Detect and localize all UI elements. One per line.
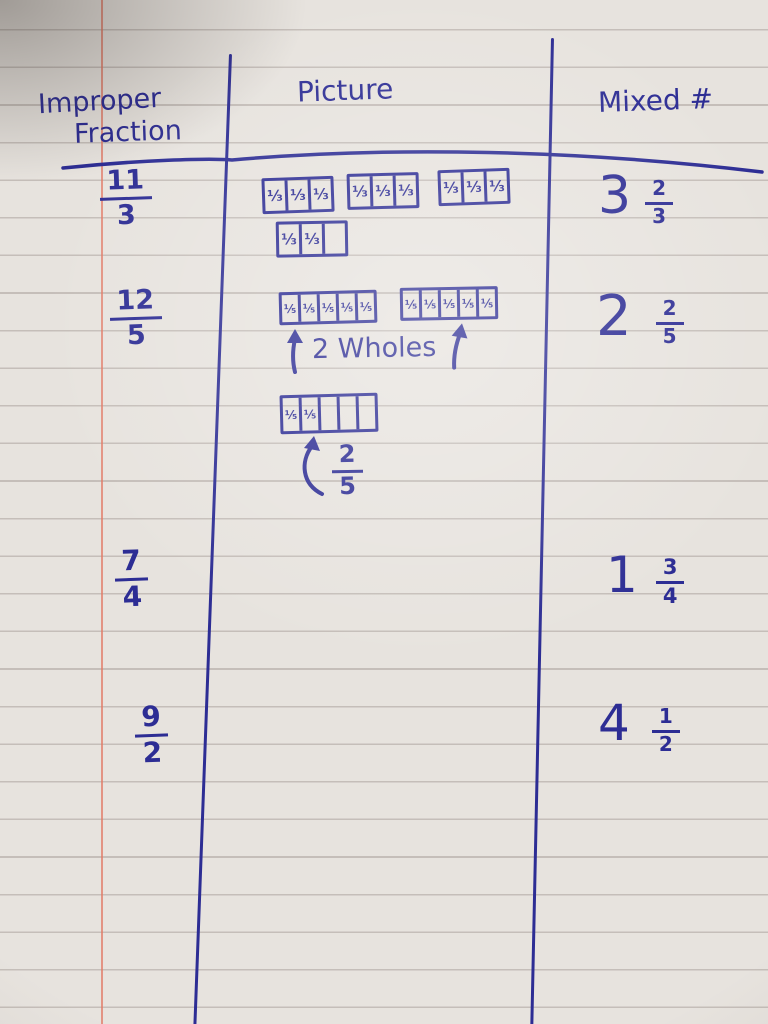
- filled-cell: ⅕: [403, 291, 419, 318]
- mixed-whole: 1: [606, 552, 638, 600]
- header-picture: Picture: [296, 72, 393, 108]
- header-improper-line1: Improper: [37, 83, 162, 120]
- arrow-up-icon: [283, 328, 307, 374]
- filled-cell: ⅕: [457, 290, 476, 317]
- arrow-up-icon: [442, 320, 474, 371]
- fraction-denominator: 4: [663, 584, 678, 608]
- empty-cell: [322, 223, 346, 253]
- mixed-number: 1 3 4: [606, 552, 684, 607]
- fraction-denominator: 3: [652, 205, 666, 228]
- filled-cell: ⅓: [460, 172, 484, 203]
- filled-cell: ⅕: [282, 295, 299, 322]
- fraction-numerator: 9: [134, 701, 169, 737]
- header-mixed: Mixed #: [597, 82, 713, 119]
- fraction-numerator: 2: [656, 298, 684, 325]
- filled-cell: ⅓: [299, 224, 323, 254]
- part-fraction-label: 2 5: [331, 442, 363, 500]
- column-divider-right: [530, 38, 554, 1024]
- mixed-number: 3 2 3: [598, 172, 673, 227]
- fraction-denominator: 5: [126, 320, 146, 351]
- fraction-bar: ⅓⅓: [276, 220, 349, 257]
- mixed-fraction: 3 4: [656, 556, 685, 607]
- fraction-numerator: 7: [114, 545, 149, 581]
- filled-cell: ⅓: [440, 172, 461, 203]
- improper-fraction: 9 2: [134, 701, 170, 769]
- improper-fraction: 7 4: [114, 545, 150, 613]
- fraction-bar: ⅕⅕⅕⅕⅕: [279, 290, 378, 326]
- fraction-bar: ⅓⅓⅓: [261, 176, 334, 214]
- fraction-denominator: 3: [116, 200, 136, 231]
- notebook-page: Improper Fraction Picture Mixed # 11 3 ⅓…: [0, 0, 768, 1024]
- column-divider-left: [193, 54, 232, 1024]
- fraction-bar: ⅓⅓⅓: [347, 172, 420, 210]
- fraction-denominator: 2: [142, 737, 163, 769]
- empty-cell: [318, 397, 338, 430]
- fraction-bar: ⅕⅕: [280, 393, 379, 435]
- mixed-whole: 4: [598, 700, 630, 748]
- fraction-bar: ⅓⅓⅓: [437, 168, 510, 206]
- improper-fraction: 11 3: [99, 165, 153, 231]
- fraction-denominator: 5: [663, 325, 677, 348]
- filled-cell: ⅕: [476, 289, 495, 316]
- fraction-numerator: 12: [109, 285, 162, 321]
- mixed-fraction: 2 3: [645, 178, 673, 227]
- mixed-number: 2 2 5: [596, 290, 684, 347]
- fraction-bar: ⅕⅕⅕⅕⅕: [400, 286, 499, 321]
- filled-cell: ⅕: [355, 293, 375, 320]
- filled-cell: ⅕: [298, 294, 318, 321]
- mixed-whole: 2: [596, 290, 632, 343]
- filled-cell: ⅓: [279, 224, 300, 254]
- empty-cell: [337, 396, 357, 429]
- curved-arrow-icon: [294, 434, 334, 496]
- filled-cell: ⅕: [336, 293, 356, 320]
- mixed-fraction: 1 2: [652, 706, 680, 755]
- filled-cell: ⅕: [317, 294, 337, 321]
- mixed-fraction: 2 5: [656, 298, 684, 347]
- fraction-denominator: 2: [659, 733, 673, 756]
- filled-cell: ⅕: [299, 397, 319, 430]
- header-improper-line2: Fraction: [73, 115, 182, 150]
- mixed-number: 4 1 2: [598, 700, 680, 755]
- filled-cell: ⅓: [483, 171, 507, 202]
- empty-cell: [356, 396, 376, 429]
- filled-cell: ⅕: [419, 290, 438, 317]
- filled-cell: ⅓: [264, 180, 285, 211]
- filled-cell: ⅕: [438, 290, 457, 317]
- filled-cell: ⅓: [284, 180, 308, 211]
- fraction-numerator: 3: [656, 556, 685, 584]
- filled-cell: ⅓: [307, 179, 331, 210]
- fraction-denominator: 5: [339, 473, 356, 500]
- mixed-whole: 3: [598, 172, 631, 221]
- fraction-denominator: 4: [122, 581, 143, 613]
- fraction-numerator: 2: [331, 442, 362, 473]
- fraction-numerator: 11: [99, 165, 152, 201]
- fraction-numerator: 1: [652, 706, 680, 733]
- filled-cell: ⅓: [393, 175, 417, 206]
- wholes-label: 2 Wholes: [312, 332, 437, 365]
- filled-cell: ⅕: [283, 398, 300, 431]
- filled-cell: ⅓: [370, 176, 394, 207]
- fraction-numerator: 2: [645, 178, 673, 205]
- filled-cell: ⅓: [350, 176, 371, 207]
- improper-fraction: 12 5: [109, 285, 163, 351]
